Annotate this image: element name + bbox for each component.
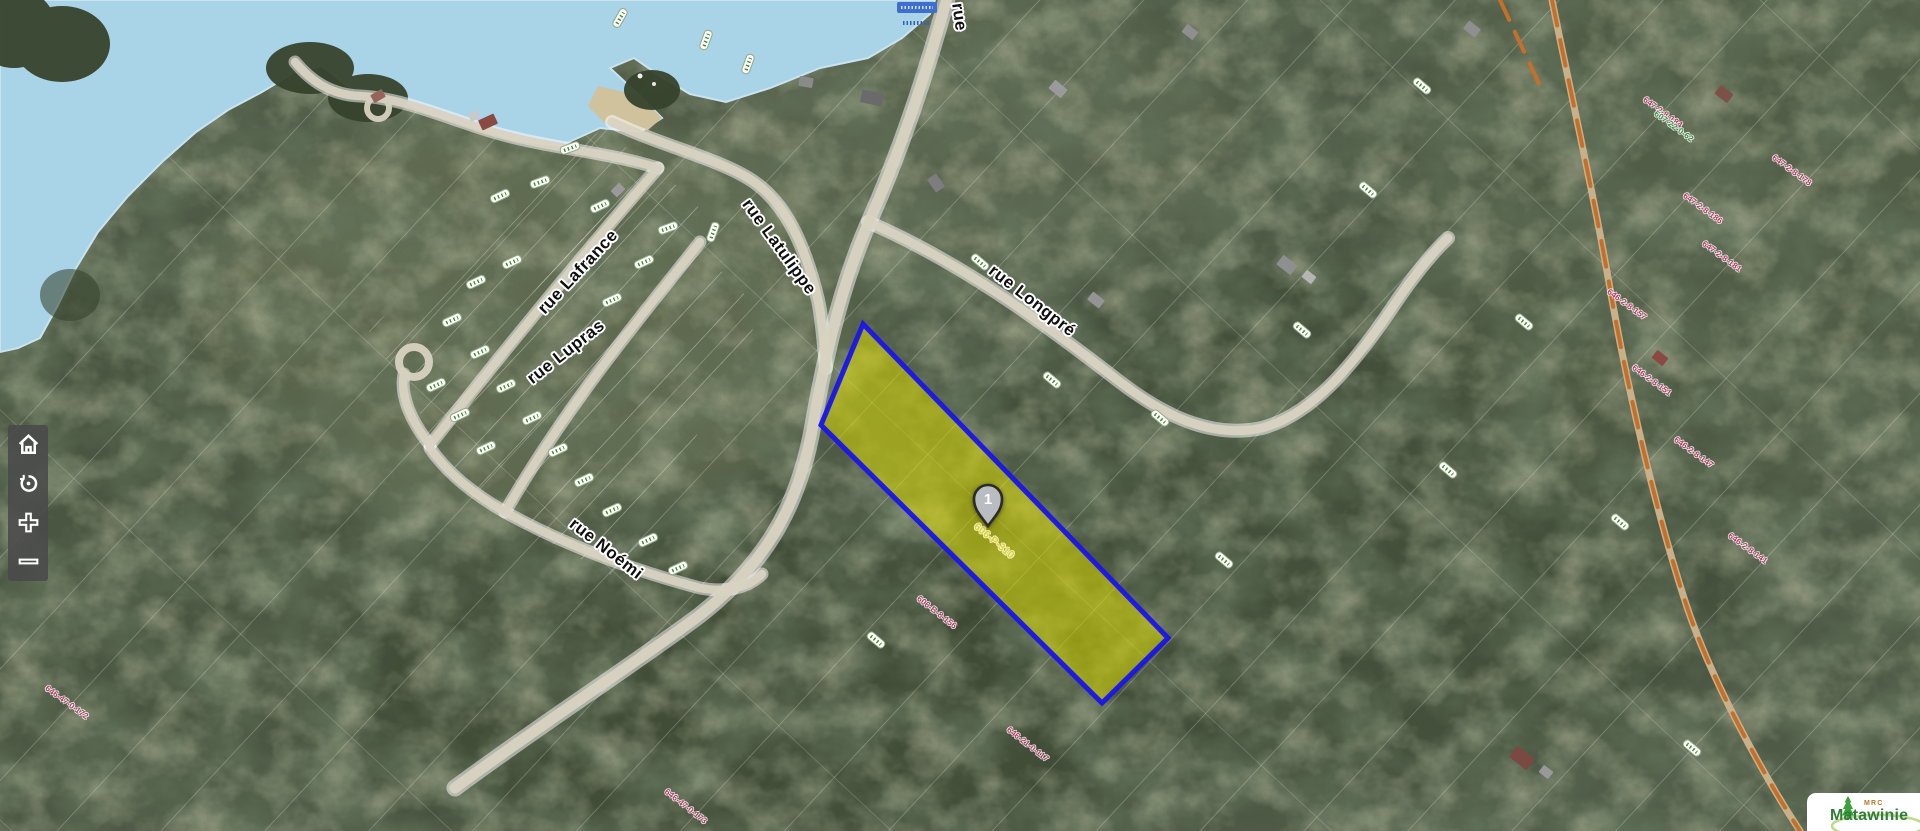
home-icon [15,431,42,458]
selected-parcel-marker[interactable]: 1 [970,480,1006,528]
reset-rotation-icon [15,470,42,497]
map-viewer: 647-2-8-184607-22-0-62647-2-8-186647-2-8… [0,0,1920,831]
zoom-out-button[interactable] [8,542,48,581]
logo-name: Matawinie [1830,807,1908,825]
map-canvas[interactable] [0,0,1920,831]
marker-number: 1 [984,491,992,508]
map-controls [8,425,48,581]
reset-view-button[interactable] [8,464,48,503]
plus-icon [15,509,42,536]
logo-prefix: MRC [1864,800,1884,807]
mrc-matawinie-logo: MRC Matawinie [1807,793,1920,831]
zoom-in-button[interactable] [8,503,48,542]
home-button[interactable] [8,425,48,464]
minus-icon [15,548,42,575]
